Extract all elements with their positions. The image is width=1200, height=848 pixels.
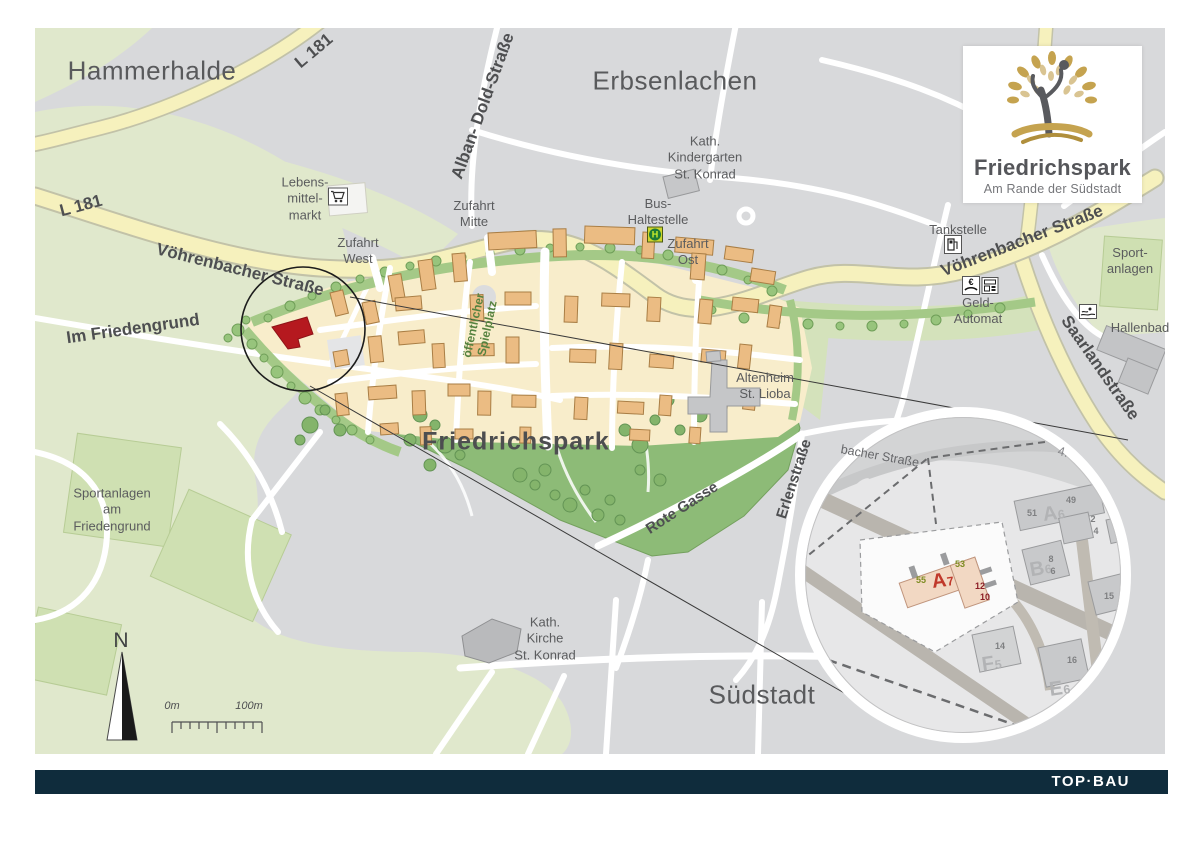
site-plan-page: Hammerhalde Erbsenlachen Südstadt Friedr… xyxy=(0,0,1200,848)
logo-subtitle: Am Rande der Südstadt xyxy=(963,182,1142,196)
topbau-logo: TOP·BAU xyxy=(1051,773,1130,790)
project-logo: Friedrichspark Am Rande der Südstadt xyxy=(963,46,1142,203)
logo-title: Friedrichspark xyxy=(963,155,1142,181)
footer-bar: TOP·BAU xyxy=(35,770,1168,794)
supermarket-site xyxy=(327,183,367,216)
tree-figure-icon xyxy=(963,46,1142,148)
